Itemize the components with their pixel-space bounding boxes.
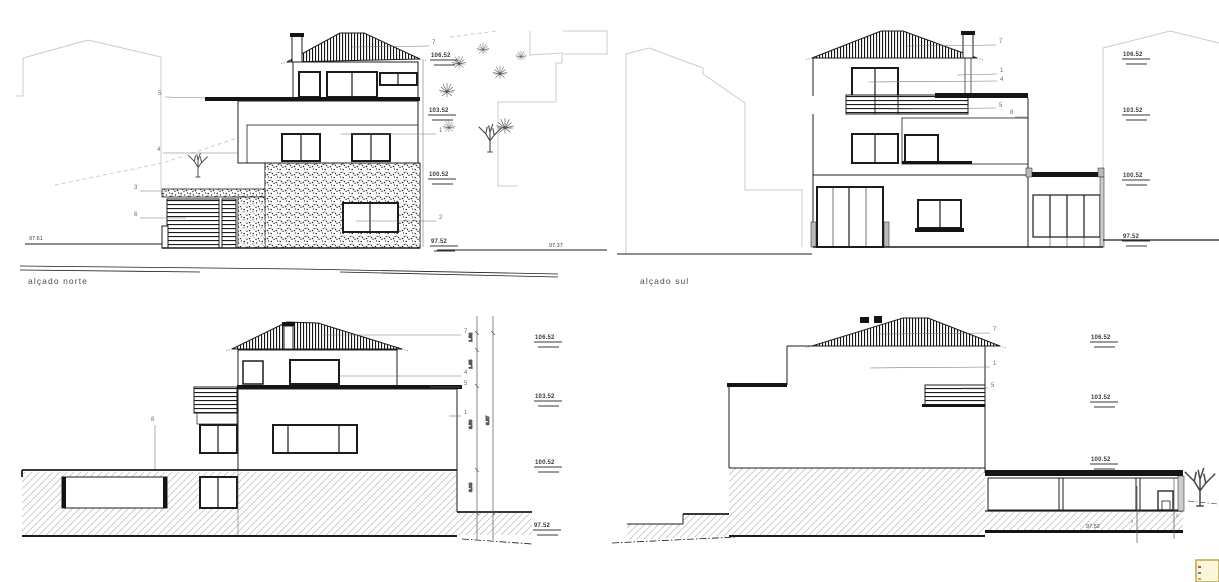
level-100-52: 100.52 [1123, 173, 1143, 179]
level-100-52: 100.52 [535, 460, 555, 466]
callout-8: 8 [1010, 110, 1014, 116]
drawing-title-north: alçado norte [28, 276, 88, 286]
roof [287, 33, 420, 62]
level-103-52: 103.52 [535, 394, 555, 400]
chimney [860, 317, 869, 323]
louver-band [194, 387, 237, 413]
level-100-52: 100.52 [429, 172, 449, 178]
drawing-sheet: 97.61 97.37 106.52 103.52 100.52 97.52 7… [0, 0, 1219, 582]
elevations-svg: 97.61 97.37 106.52 103.52 100.52 97.52 7… [0, 0, 1219, 582]
roof-slab [205, 97, 420, 101]
callout-5: 5 [999, 103, 1003, 109]
callout-7: 7 [432, 40, 436, 46]
ground-hatch [729, 468, 985, 536]
ll-level-markers: 106.52 103.52 100.52 97.52 [533, 335, 562, 535]
chimney [874, 316, 882, 323]
callout-4: 4 [1000, 77, 1004, 83]
annex-glazing [988, 478, 1181, 510]
callout-5: 5 [464, 381, 468, 387]
lr-annex [985, 470, 1184, 543]
window [273, 425, 357, 453]
dim-total: 9.67 [485, 415, 491, 425]
window [905, 135, 938, 163]
lr-ground [612, 468, 985, 543]
level-106-52: 106.52 [1091, 335, 1111, 341]
callout-1: 1 [993, 361, 997, 367]
south-building [805, 31, 1104, 247]
dim-lower-floor: 3.00 [468, 482, 474, 492]
ledge-slab [727, 383, 787, 387]
callout-4: 4 [464, 370, 468, 376]
chimney [963, 34, 973, 58]
elevation-lower-left: 1.52 1.65 3.50 3.00 9.67 106.52 103.52 1… [22, 316, 562, 544]
drawing-title-south: alçado sul [640, 276, 689, 286]
callout-2: 2 [439, 215, 443, 221]
level-100-52: 100.52 [1091, 457, 1111, 463]
north-building [162, 33, 427, 248]
dim-roof: 1.52 [468, 332, 474, 342]
roof [232, 322, 402, 349]
level-97-52: 97.52 [534, 523, 550, 529]
dim-main-floor: 3.50 [468, 419, 474, 429]
shrub-icon [493, 66, 507, 79]
bare-tree-icon [188, 153, 207, 177]
callout-3: 3 [134, 185, 138, 191]
ground-level-97-52: 97.52 [1086, 524, 1100, 530]
dim-attic: 1.65 [468, 359, 474, 369]
shrub-icon [443, 121, 456, 132]
shrub-icon [452, 56, 466, 69]
callout-1: 1 [1000, 68, 1004, 74]
garage-door [167, 199, 219, 248]
level-103-52: 103.52 [1091, 395, 1111, 401]
ll-building [194, 322, 462, 470]
chimney [284, 326, 293, 349]
level-97-52: 97.52 [431, 239, 447, 245]
shrub-icon [515, 51, 526, 61]
lr-trees [1185, 468, 1218, 506]
roof-slab [237, 385, 462, 389]
callout-6: 6 [134, 212, 138, 218]
level-103-52: 103.52 [429, 108, 449, 114]
callout-5: 5 [991, 383, 995, 389]
callout-1: 1 [439, 128, 443, 134]
level-106-52: 106.52 [1123, 52, 1143, 58]
retaining-structure [62, 477, 167, 508]
flat-roof-slab [935, 93, 1028, 98]
ll-dimensions: 1.52 1.65 3.50 3.00 9.67 [468, 316, 495, 540]
callout-4: 4 [157, 147, 161, 153]
callout-7: 7 [999, 39, 1003, 45]
callout-1: 1 [464, 410, 468, 416]
corner-stamp [1196, 560, 1219, 582]
level-106-52: 106.52 [535, 335, 555, 341]
spot-level-right: 97.37 [549, 243, 563, 249]
bare-tree-icon [1185, 468, 1215, 506]
level-97-52: 97.52 [1123, 234, 1139, 240]
callout-7: 7 [464, 329, 468, 335]
sliding-door [817, 187, 883, 247]
level-106-52: 106.52 [431, 53, 451, 59]
elevation-north: 97.61 97.37 106.52 103.52 100.52 97.52 7… [16, 31, 607, 286]
shrub-icon [477, 43, 490, 54]
shrub-icon [439, 83, 455, 97]
north-ground [20, 244, 607, 277]
spot-level-left: 97.61 [29, 236, 43, 242]
roof [812, 31, 977, 58]
level-103-52: 103.52 [1123, 108, 1143, 114]
elevation-south: 106.52 103.52 100.52 97.52 7 1 4 5 8 alç… [617, 31, 1219, 286]
annex-slab [985, 470, 1183, 476]
annex-slab [1028, 172, 1103, 177]
south-level-markers: 106.52 103.52 100.52 97.52 [1122, 52, 1150, 246]
callout-8: 8 [151, 417, 155, 423]
callout-7: 7 [993, 327, 997, 333]
annex-door [1158, 491, 1173, 510]
lr-building [727, 316, 1007, 473]
roof [812, 318, 1000, 346]
chimney [292, 36, 302, 62]
ll-ground [22, 470, 532, 544]
lr-level-markers: 106.52 103.52 100.52 97.52 [1086, 335, 1118, 530]
elevation-lower-right: 106.52 103.52 100.52 97.52 7 1 5 4 2 [612, 316, 1219, 582]
